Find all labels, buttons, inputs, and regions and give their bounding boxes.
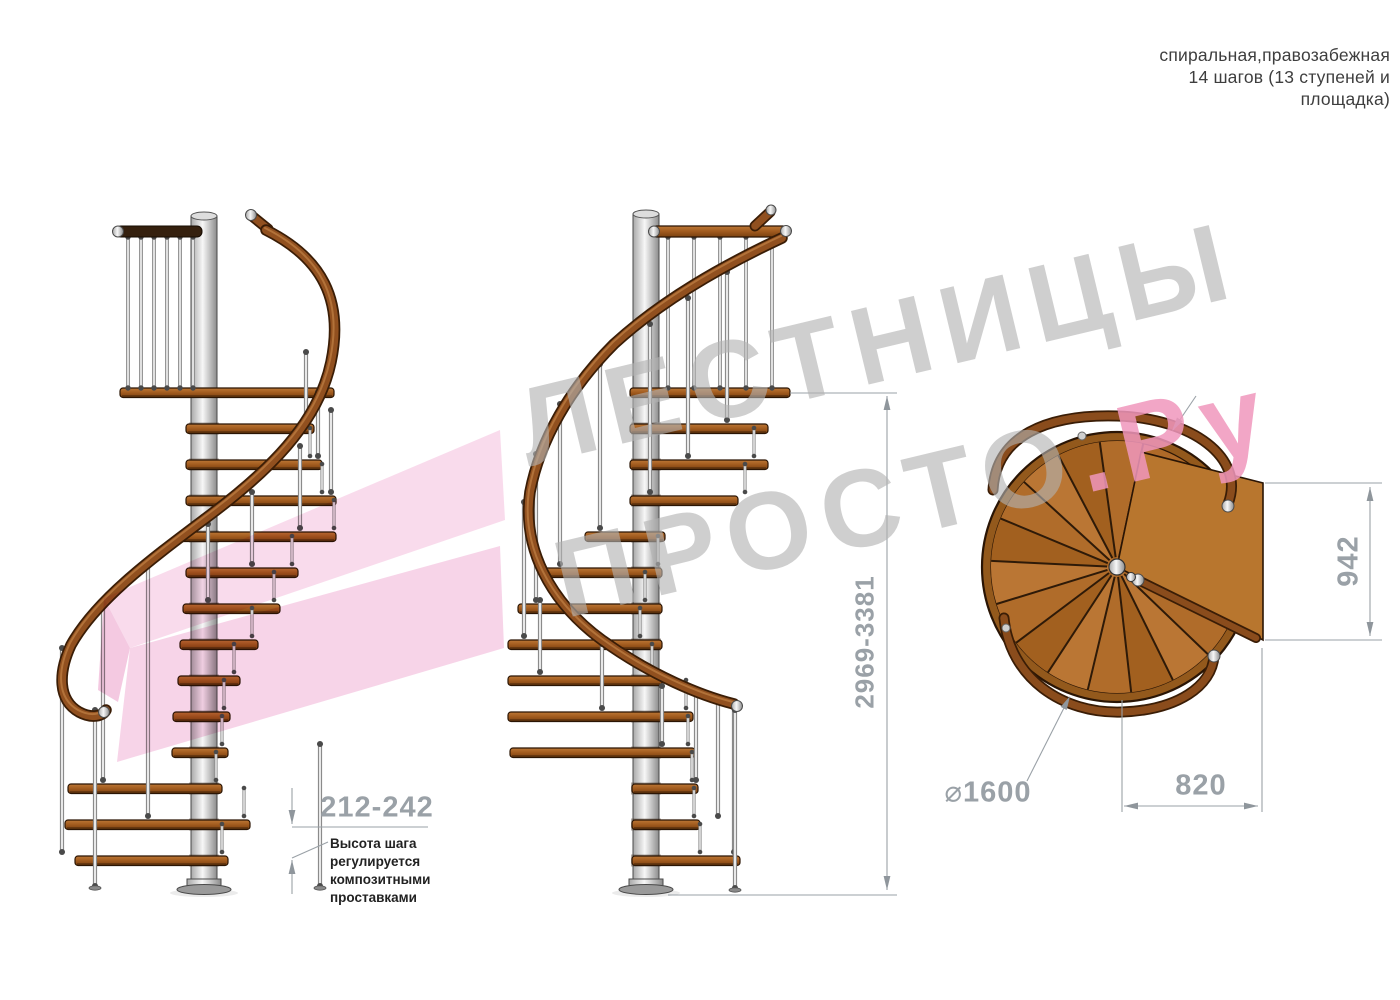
plan-width-dimension-label: 820: [1175, 770, 1226, 803]
step-height-note: Высота шага регулируется композитными пр…: [330, 835, 430, 907]
step-height-dimension-label: 212-242: [320, 792, 433, 825]
technical-drawing-page: ЛЕСТНИЦЫ ПРОСТО.Ру спиральная,правозабеж…: [0, 0, 1400, 1000]
step-height-note-line3: композитными: [330, 871, 430, 889]
header-note-line1: спиральная,правозабежная: [1159, 44, 1390, 66]
total-height-dimension-label: 2969-3381: [850, 575, 881, 708]
diameter-value: 1600: [963, 777, 1032, 809]
plan-height-dimension-label: 942: [1333, 535, 1366, 586]
header-note-line3: площадка): [1159, 88, 1390, 110]
step-height-note-line1: Высота шага: [330, 835, 430, 853]
diameter-dimension-label: ⌀1600: [945, 775, 1032, 810]
step-height-note-line2: регулируется: [330, 853, 430, 871]
diameter-symbol: ⌀: [945, 775, 963, 809]
header-note: спиральная,правозабежная 14 шагов (13 ст…: [1159, 44, 1390, 110]
step-height-note-line4: проставками: [330, 889, 430, 907]
header-note-line2: 14 шагов (13 ступеней и: [1159, 66, 1390, 88]
